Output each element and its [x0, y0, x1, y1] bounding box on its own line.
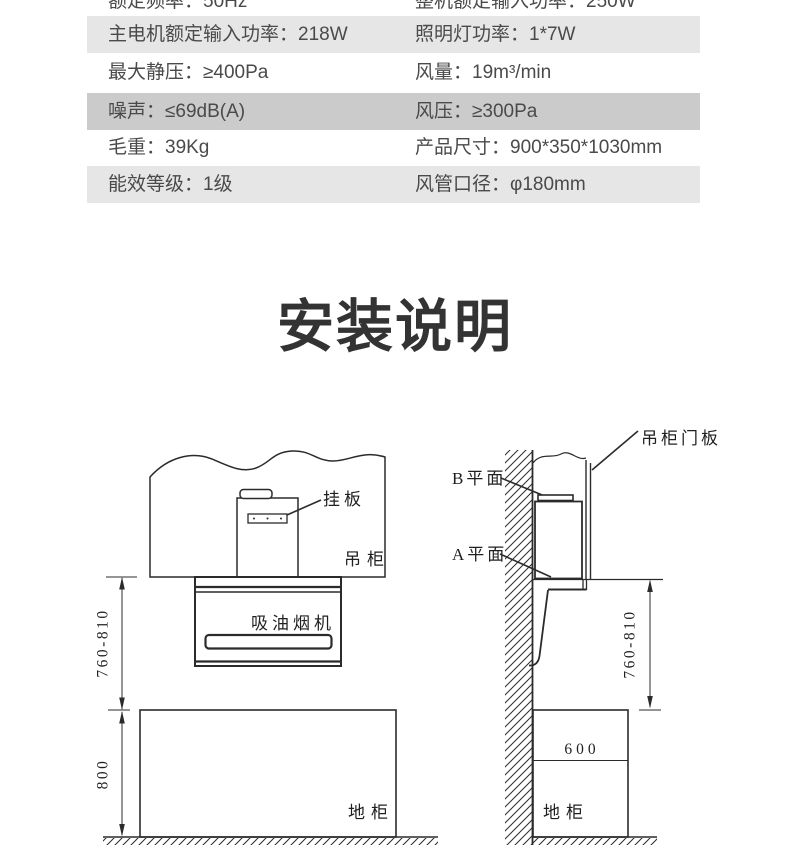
floor-hatch [103, 838, 438, 845]
wall-hatch [505, 450, 532, 845]
spec-cell-energy-rating: 能效等级：1级 [87, 166, 415, 203]
spec-row: 主电机额定输入功率：218W 照明灯功率：1*7W [87, 16, 700, 53]
spec-cell-motor-power: 主电机额定输入功率：218W [87, 16, 415, 53]
plane-a-label: A平面 [452, 545, 507, 564]
spec-cell-lamp-power: 照明灯功率：1*7W [415, 16, 700, 53]
wall-cabinet-label: 吊柜 [344, 550, 390, 569]
duct-cap [240, 490, 272, 499]
spec-cell-product-size: 产品尺寸：900*350*1030mm [415, 130, 700, 166]
door-panel-leader [592, 431, 638, 470]
cabinet-top-break-line [533, 453, 586, 463]
counter-depth-label: 600 [564, 741, 599, 758]
spec-cell-air-pressure: 风压：≥300Pa [415, 93, 700, 130]
spec-row: 噪声：≤69dB(A) 风压：≥300Pa [87, 93, 700, 130]
side-view-diagram: 吊柜门板 B平面 A平面 [452, 429, 721, 845]
spec-row: 毛重：39Kg 产品尺寸：900*350*1030mm [87, 130, 700, 166]
hanging-plate-screw [267, 518, 269, 520]
spec-row: 额定频率：50Hz 整机额定输入功率：250W [87, 0, 700, 16]
mount-plate [538, 495, 573, 501]
spec-cell-gross-weight: 毛重：39Kg [87, 130, 415, 166]
dim-counter-height-value: 800 [95, 759, 112, 790]
installation-drawing-svg: 挂板 吊柜 吸油烟机 地柜 [0, 410, 790, 845]
side-floor-cabinet-label: 地柜 [543, 803, 589, 822]
spec-cell-noise: 噪声：≤69dB(A) [87, 93, 415, 130]
hanging-plate-label: 挂板 [323, 490, 365, 509]
range-hood-label: 吸油烟机 [251, 614, 335, 633]
spec-cell-air-volume: 风量：19m³/min [415, 53, 700, 93]
spec-row-clipped: 额定频率：50Hz 整机额定输入功率：250W [87, 0, 700, 16]
duct-chimney [237, 498, 298, 577]
spec-cell-total-power: 整机额定输入功率：250W [415, 0, 700, 16]
hanging-plate-screw [280, 518, 282, 520]
installation-title: 安装说明 [0, 281, 790, 363]
hood-side-body [535, 502, 582, 579]
spec-cell-rated-frequency: 额定频率：50Hz [87, 0, 415, 16]
dim-counter-height: 800 [95, 711, 125, 837]
spec-row: 最大静压：≥400Pa 风量：19m³/min [87, 53, 700, 93]
front-view-diagram: 挂板 吊柜 吸油烟机 地柜 [95, 451, 439, 845]
spec-cell-static-pressure: 最大静压：≥400Pa [87, 53, 415, 93]
side-floor-hatch [533, 838, 657, 845]
spec-cell-duct-diameter: 风管口径：φ180mm [415, 166, 700, 203]
product-detail-page: 额定频率：50Hz 整机额定输入功率：250W 主电机额定输入功率：218W 照… [0, 0, 790, 845]
dim-hood-height: 760-810 [95, 577, 138, 710]
floor-cabinet-label: 地柜 [348, 803, 394, 822]
plane-b-label: B平面 [452, 469, 506, 488]
door-panel-label: 吊柜门板 [641, 429, 721, 448]
dim-side-hood-height: 760-810 [622, 580, 662, 711]
dim-hood-height-value: 760-810 [95, 608, 112, 677]
spec-table: 额定频率：50Hz 整机额定输入功率：250W 主电机额定输入功率：218W 照… [87, 0, 700, 203]
hanging-plate-screw [253, 518, 255, 520]
dim-side-hood-height-value: 760-810 [622, 609, 639, 678]
installation-diagrams: 挂板 吊柜 吸油烟机 地柜 [0, 410, 790, 845]
spec-row: 能效等级：1级 风管口径：φ180mm [87, 166, 700, 203]
